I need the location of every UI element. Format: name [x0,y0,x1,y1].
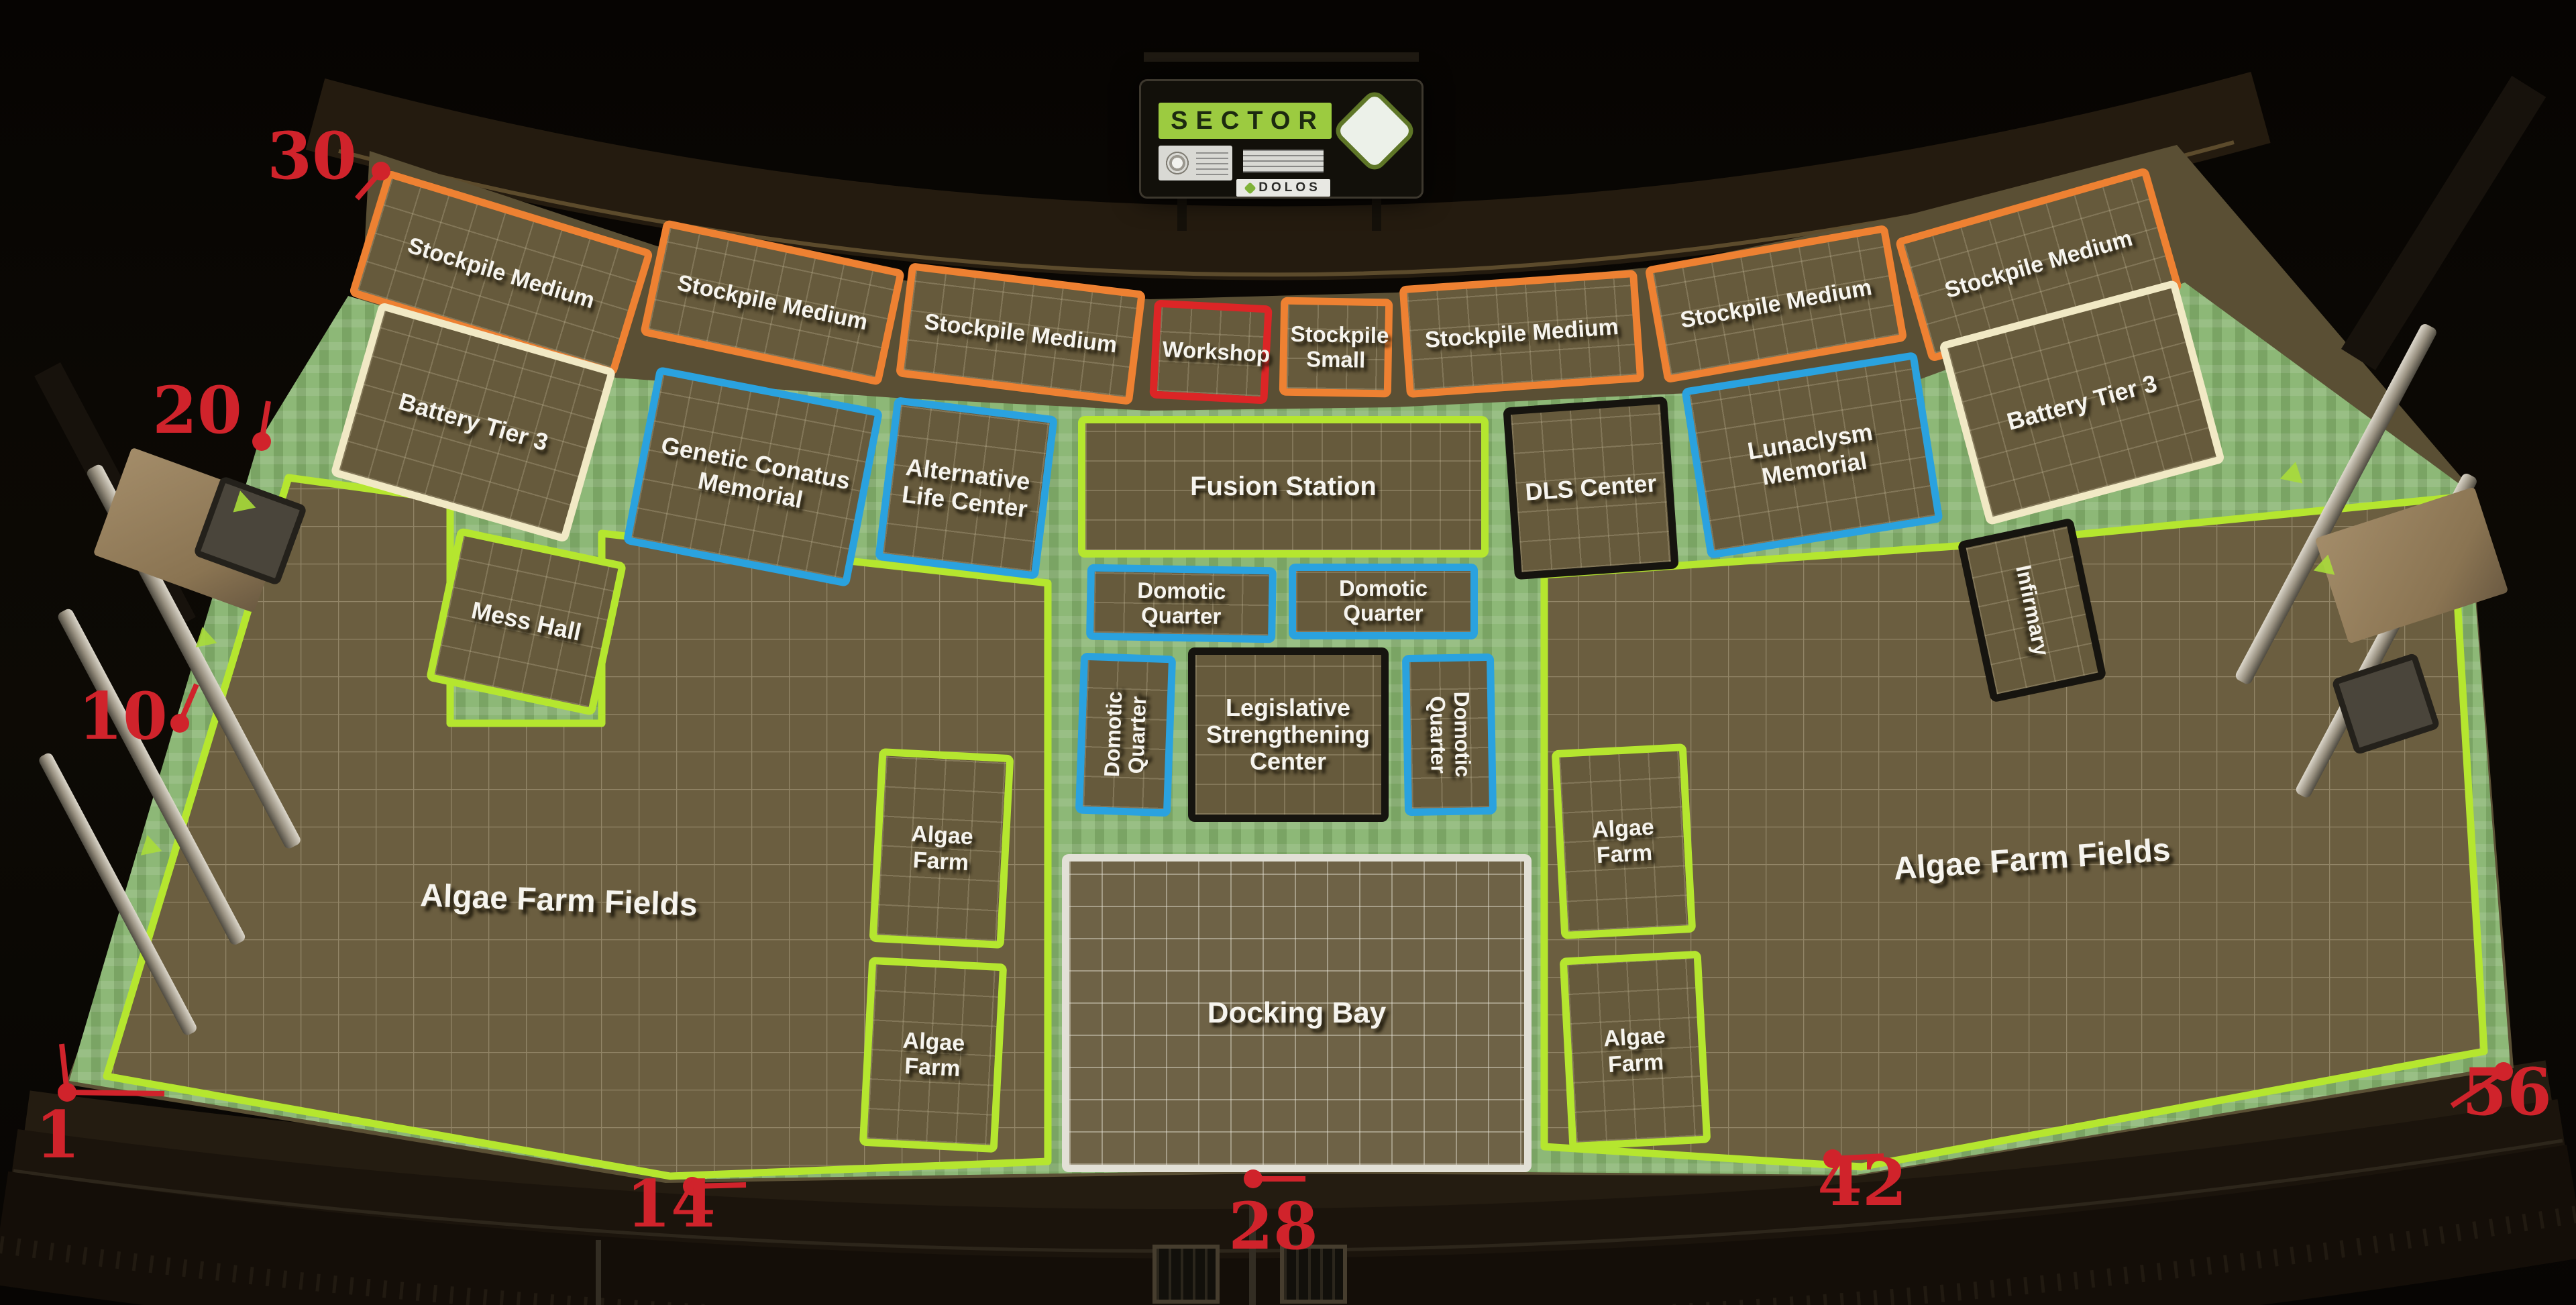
zone-mess-hall[interactable]: Mess Hall [425,527,627,715]
zone-algae-farm-2[interactable]: Algae Farm [859,957,1007,1153]
sign-scaffold-bar [1144,52,1419,62]
zone-domotic-quarter-3[interactable]: Domotic Quarter [1075,653,1176,817]
zone-stockpile-medium-4[interactable]: Stockpile Medium [1399,269,1644,397]
sector-map-screenshot: Algae Farm FieldsAlgae Farm FieldsStockp… [0,0,2576,1305]
zone-lunaclysm-memorial[interactable]: Lunaclysm Memorial [1681,351,1943,558]
zone-alternative-life-center[interactable]: Alternative Life Center [874,396,1057,579]
dolos-logo-icon [1244,182,1256,194]
zone-label: Battery Tier 3 [395,388,551,456]
dolos-logo: DOLOS [1236,179,1330,197]
zone-label: Battery Tier 3 [2004,370,2159,435]
zone-label: Stockpile Medium [405,233,598,314]
zone-legislative-strengthening-center[interactable]: Legislative Strengthening Center [1188,647,1389,822]
sign-info-card [1159,146,1232,180]
zone-label: Algae Farm [1566,813,1681,870]
zone-domotic-quarter-4[interactable]: Domotic Quarter [1401,654,1496,816]
zone-label: Algae Farm [874,1026,993,1083]
zone-label: Algae Farm [883,820,999,877]
zone-docking-bay[interactable]: Docking Bay [1062,854,1532,1172]
zone-label: Stockpile Medium [1678,274,1873,333]
zone-label: Lunaclysm Memorial [1704,412,1920,499]
zone-algae-farm-3[interactable]: Algae Farm [1551,743,1695,939]
zone-label: Algae Farm [1574,1021,1695,1078]
zone-label: Stockpile Medium [675,270,870,335]
zone-label: DLS Center [1524,470,1657,506]
zone-stockpile-medium-3[interactable]: Stockpile Medium [895,262,1145,405]
zone-label: Alternative Life Center [893,452,1039,523]
zone-domotic-quarter-1[interactable]: Domotic Quarter [1086,564,1277,643]
sign-info-card [1236,146,1330,176]
zone-infirmary[interactable]: Infirmary [1957,517,2106,702]
sector-sign-banner: SECTOR [1159,103,1332,139]
zone-label: Stockpile Medium [1942,225,2135,303]
zone-label: Domotic Quarter [1424,691,1474,778]
zone-label: Domotic Quarter [1099,577,1264,629]
zone-label: Workshop [1162,337,1260,366]
sector-sign: SECTOR DOLOS [1139,79,1424,199]
zone-algae-farm-4[interactable]: Algae Farm [1559,950,1711,1150]
zone-label: Legislative Strengthening Center [1201,694,1375,776]
sign-diamond-icon [1337,93,1411,168]
dolos-logo-text: DOLOS [1258,180,1321,195]
zone-label: Mess Hall [469,596,584,646]
zone-label-algae-farm-fields-left: Algae Farm Fields [419,877,698,923]
zone-dls-center[interactable]: DLS Center [1503,396,1678,579]
sector-sign-title: SECTOR [1165,107,1325,136]
zone-algae-farm-1[interactable]: Algae Farm [869,747,1014,948]
zone-genetic-conatus-memorial[interactable]: Genetic Conatus Memorial [623,366,883,587]
zone-stockpile-medium-2[interactable]: Stockpile Medium [639,219,905,386]
zone-label: Domotic Quarter [1100,691,1151,778]
zone-domotic-quarter-2[interactable]: Domotic Quarter [1289,564,1478,639]
station-wheel-icon [1164,150,1191,176]
zone-label: Fusion Station [1190,472,1377,502]
zone-workshop[interactable]: Workshop [1149,299,1272,404]
zone-label: Stockpile Small [1289,321,1382,372]
zone-fusion-station[interactable]: Fusion Station [1078,416,1489,558]
zone-label: Infirmary [2009,557,2054,663]
zone-label: Stockpile Medium [1424,314,1619,353]
zone-stockpile-small[interactable]: Stockpile Small [1279,297,1393,397]
sign-card-text-lines [1196,151,1228,175]
zone-label: Stockpile Medium [922,309,1118,358]
zone-label-algae-farm-fields-right: Algae Farm Fields [1892,831,2171,888]
zone-label: Genetic Conatus Memorial [648,431,857,523]
zone-label: Docking Bay [1207,996,1387,1029]
zone-label: Domotic Quarter [1301,576,1465,626]
